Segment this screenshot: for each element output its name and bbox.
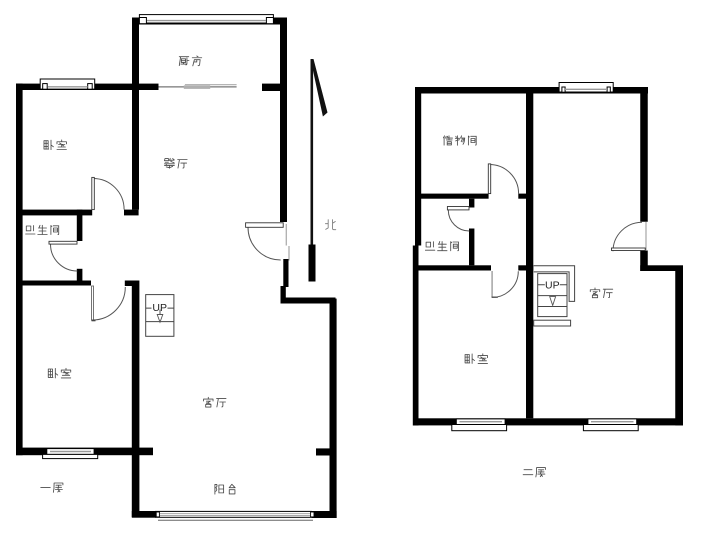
svg-text:UP: UP [545, 279, 560, 291]
